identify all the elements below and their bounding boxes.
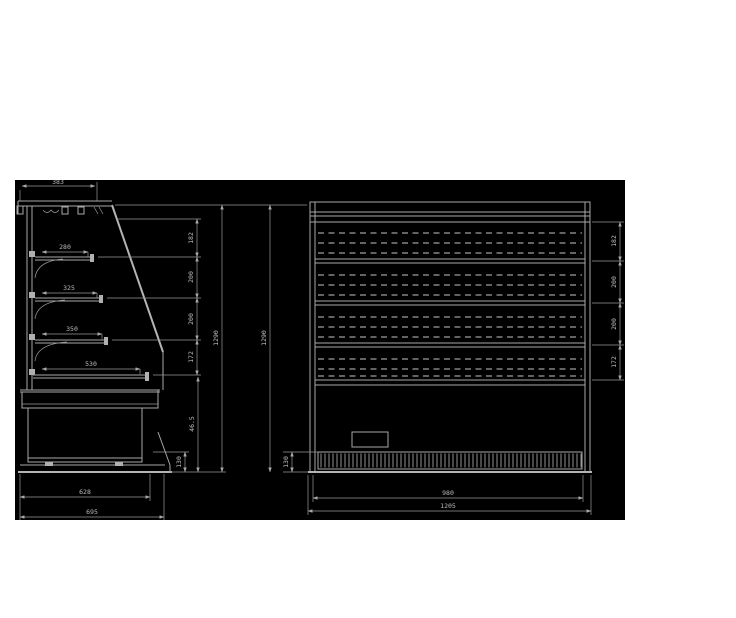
dim-label-deck-depth: 530 <box>85 360 97 368</box>
dim-label-spacing4: 172 <box>187 351 195 363</box>
bottom-deck <box>33 372 149 381</box>
back-wall <box>27 206 35 390</box>
extension-lines <box>98 219 201 375</box>
dim-label-inner-width: 980 <box>442 489 454 497</box>
dim-label-top-depth: 383 <box>52 180 64 186</box>
controller-display <box>352 432 388 447</box>
dim-label-grille-height: 130 <box>282 456 290 468</box>
dim-label-lower-section: 46.5 <box>188 416 196 432</box>
shelf-1 <box>35 254 94 278</box>
air-curtain-symbol <box>43 210 59 213</box>
dim-label-front-spacing3: 200 <box>610 318 618 330</box>
shelf-3 <box>35 337 108 361</box>
canopy-front <box>310 212 590 222</box>
drawing-canvas: 383 280 325 350 530 182 200 200 <box>15 180 625 520</box>
dim-label-shelf2-depth: 325 <box>63 284 75 292</box>
base-compartment <box>18 377 172 472</box>
dim-plinth-side: 130 <box>153 452 189 472</box>
canopy <box>17 201 112 214</box>
technical-drawing: 383 280 325 350 530 182 200 200 <box>15 180 625 520</box>
dim-label-shelf1-depth: 280 <box>59 243 71 251</box>
dim-label-total-height-side: 1290 <box>212 330 220 346</box>
dim-base-depth: 628 695 <box>20 474 164 520</box>
dim-label-front-spacing2: 200 <box>610 276 618 288</box>
ventilation-grille <box>318 452 582 469</box>
shelf-line-3 <box>315 343 585 347</box>
front-view: 1290 130 182 200 200 172 980 1205 <box>260 202 624 515</box>
shelf-line-2 <box>315 301 585 305</box>
dim-label-shelf3-depth: 350 <box>66 325 78 333</box>
dim-widths: 980 1205 <box>308 475 591 515</box>
dim-label-spacing2: 200 <box>187 271 195 283</box>
shelf-line-1 <box>315 259 585 263</box>
dim-total-height-side: 1290 <box>115 205 307 472</box>
shelf-2 <box>35 295 103 319</box>
lamp-detail <box>78 207 84 214</box>
dim-label-overall-depth: 695 <box>86 508 98 516</box>
dim-label-front-spacing1: 182 <box>610 235 618 247</box>
side-view: 383 280 325 350 530 182 200 200 <box>17 180 307 520</box>
dim-shelf-spacings-front: 182 200 200 172 <box>592 222 624 380</box>
lamp-detail <box>62 207 68 214</box>
dim-label-front-spacing4: 172 <box>610 356 618 368</box>
dim-label-plinth-side: 130 <box>175 456 183 468</box>
dim-top-depth: 383 <box>20 180 97 201</box>
corner-ticks <box>94 207 103 214</box>
dim-label-spacing3: 200 <box>187 313 195 325</box>
dim-total-height-front: 1290 <box>260 205 270 472</box>
dim-shelf-spacings-side: 182 200 200 172 <box>187 219 197 375</box>
dim-grille-height: 130 <box>282 452 318 472</box>
slanted-glass-front <box>112 205 163 352</box>
deck-line <box>315 380 585 385</box>
dim-label-base-depth: 628 <box>79 488 91 496</box>
dim-label-total-height-front: 1290 <box>260 330 268 346</box>
front-bumper <box>158 377 170 472</box>
dim-shelf-depths: 280 325 350 530 <box>42 243 140 374</box>
dim-label-spacing1: 182 <box>187 232 195 244</box>
dim-label-overall-width: 1205 <box>440 502 456 510</box>
dim-lower-section: 46.5 <box>188 377 198 472</box>
